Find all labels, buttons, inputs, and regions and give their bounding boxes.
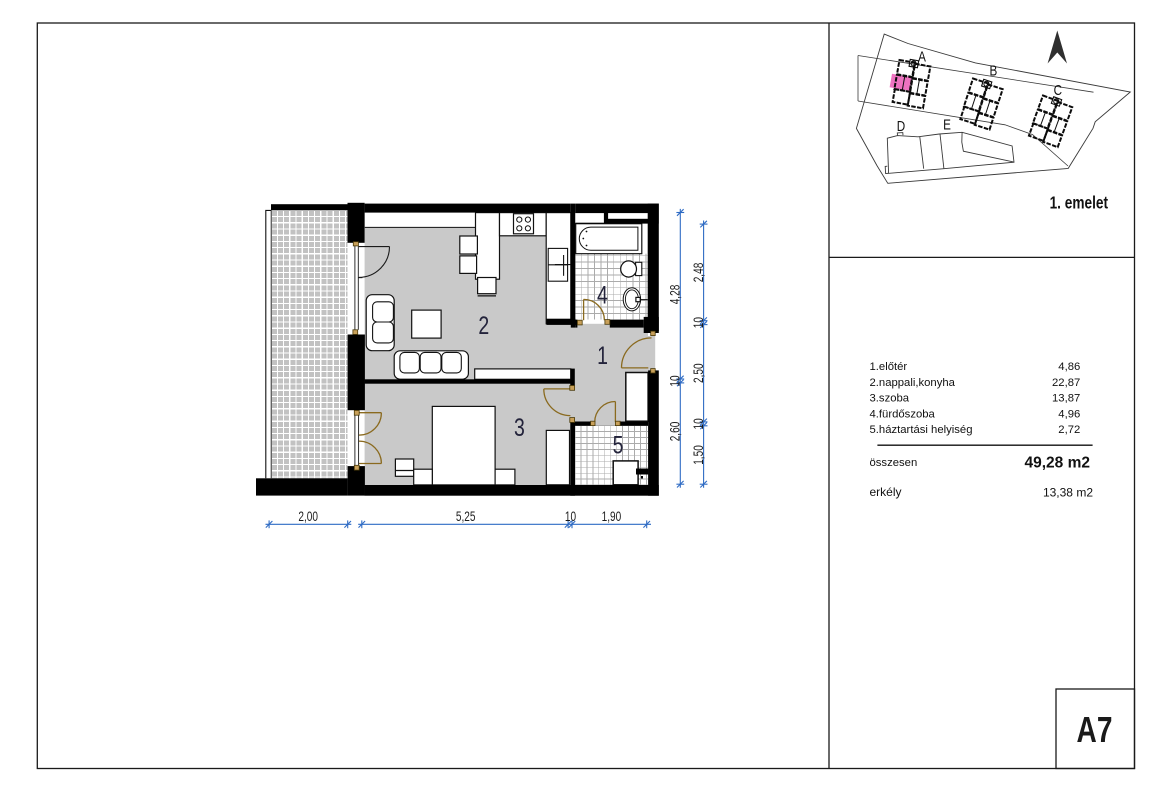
svg-text:3.szoba: 3.szoba [870, 393, 910, 405]
svg-text:1.előtér: 1.előtér [870, 361, 908, 373]
svg-text:1,50: 1,50 [691, 445, 707, 465]
svg-text:5.háztartási helyiség: 5.háztartási helyiség [870, 424, 973, 436]
svg-text:5,25: 5,25 [456, 508, 476, 524]
svg-text:2,48: 2,48 [691, 263, 707, 283]
svg-text:10: 10 [667, 375, 683, 386]
svg-text:1. emelet: 1. emelet [1050, 194, 1109, 213]
svg-text:B: B [989, 62, 997, 79]
svg-text:4.fürdőszoba: 4.fürdőszoba [870, 408, 936, 420]
svg-text:2,00: 2,00 [298, 508, 318, 524]
svg-text:13,87: 13,87 [1052, 393, 1080, 405]
svg-text:4,86: 4,86 [1058, 361, 1080, 373]
svg-text:2.nappali,konyha: 2.nappali,konyha [870, 377, 956, 389]
svg-text:4,28: 4,28 [667, 285, 683, 305]
svg-text:1: 1 [597, 342, 608, 370]
svg-text:E: E [943, 116, 951, 133]
svg-text:2,60: 2,60 [667, 422, 683, 442]
svg-text:erkély: erkély [870, 485, 902, 499]
svg-text:4: 4 [597, 281, 608, 309]
svg-text:4,96: 4,96 [1058, 408, 1080, 420]
svg-text:2,50: 2,50 [691, 363, 707, 383]
svg-text:1,90: 1,90 [602, 508, 622, 524]
svg-text:3: 3 [514, 414, 525, 442]
svg-text:5: 5 [613, 431, 624, 459]
svg-text:10: 10 [565, 508, 576, 524]
svg-text:D: D [897, 118, 906, 135]
svg-text:2: 2 [478, 312, 489, 340]
svg-text:2,72: 2,72 [1058, 424, 1080, 436]
svg-text:10: 10 [691, 317, 707, 328]
svg-text:A7: A7 [1077, 710, 1113, 750]
svg-text:C: C [1054, 82, 1063, 99]
svg-text:22,87: 22,87 [1052, 377, 1080, 389]
svg-text:13,38 m2: 13,38 m2 [1043, 486, 1093, 500]
svg-text:10: 10 [691, 418, 707, 429]
svg-text:49,28 m2: 49,28 m2 [1025, 455, 1091, 472]
svg-text:A: A [918, 48, 926, 65]
svg-text:összesen: összesen [870, 457, 918, 469]
